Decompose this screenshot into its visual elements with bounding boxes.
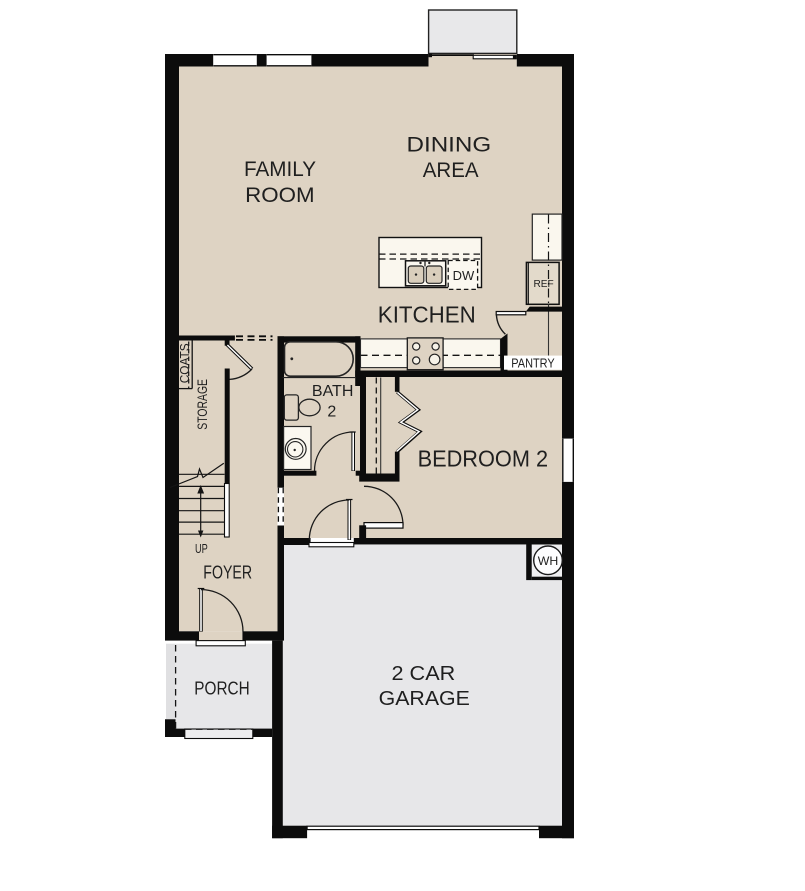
svg-text:GARAGE: GARAGE xyxy=(379,687,470,710)
svg-text:WH: WH xyxy=(538,554,559,568)
svg-text:PANTRY: PANTRY xyxy=(511,357,555,371)
svg-text:BEDROOM 2: BEDROOM 2 xyxy=(418,446,548,472)
svg-text:KITCHEN: KITCHEN xyxy=(378,302,476,328)
svg-text:FAMILY: FAMILY xyxy=(244,157,316,181)
svg-text:2: 2 xyxy=(327,404,336,421)
svg-text:UP: UP xyxy=(195,541,208,556)
svg-text:DINING: DINING xyxy=(407,133,492,157)
svg-text:BATH: BATH xyxy=(312,383,354,400)
svg-text:2 CAR: 2 CAR xyxy=(392,662,456,685)
svg-text:PORCH: PORCH xyxy=(194,678,249,698)
svg-text:ROOM: ROOM xyxy=(245,183,315,207)
svg-text:REF: REF xyxy=(534,278,554,290)
svg-text:COATS: COATS xyxy=(178,343,192,383)
svg-text:STORAGE: STORAGE xyxy=(195,379,210,430)
svg-text:DW: DW xyxy=(453,269,475,283)
svg-text:AREA: AREA xyxy=(423,158,480,182)
svg-text:FOYER: FOYER xyxy=(203,561,252,582)
